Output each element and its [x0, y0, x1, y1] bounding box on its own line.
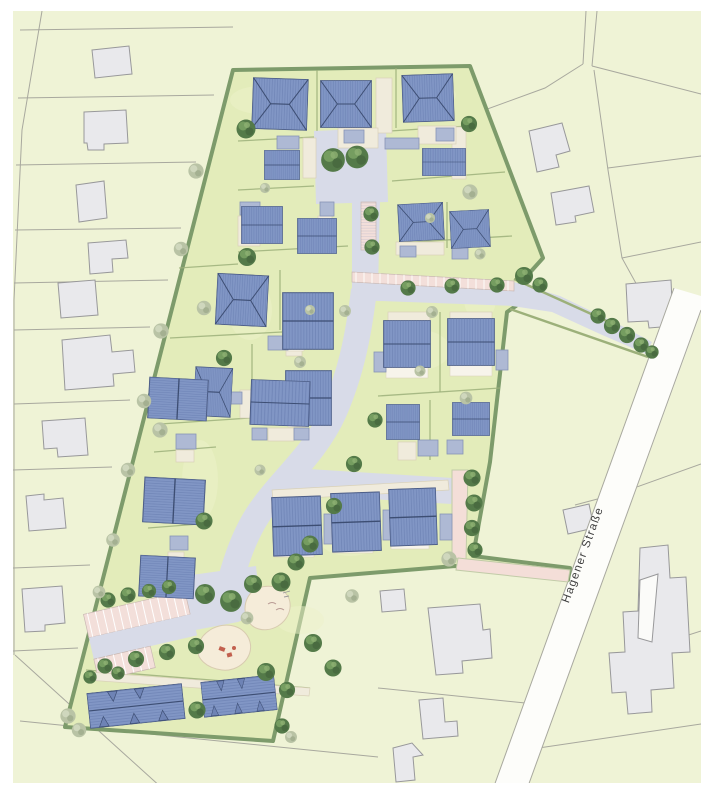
tree — [111, 666, 124, 679]
tree — [321, 148, 345, 172]
house — [389, 488, 438, 546]
bush — [305, 305, 315, 315]
tree — [346, 456, 362, 472]
tree — [364, 239, 379, 254]
tree — [195, 584, 215, 604]
house — [148, 377, 209, 421]
tree — [515, 267, 533, 285]
tree — [363, 206, 378, 221]
bush — [153, 323, 168, 338]
tree — [83, 670, 96, 683]
garage — [320, 202, 334, 216]
tree — [237, 120, 256, 139]
bush — [414, 365, 425, 376]
bush — [426, 306, 438, 318]
house-hip-roof — [252, 78, 309, 131]
tree — [238, 248, 256, 266]
bush — [152, 422, 167, 437]
tree — [220, 590, 242, 612]
tree — [304, 634, 322, 652]
site-plan-map: Hagener Straße — [0, 0, 701, 800]
tree — [590, 308, 605, 323]
house — [242, 206, 283, 243]
bush — [254, 464, 265, 475]
tree — [461, 116, 477, 132]
bush — [260, 183, 270, 193]
house-hip-roof — [402, 74, 455, 123]
bush — [241, 612, 254, 625]
bush — [441, 551, 456, 566]
bush — [460, 392, 473, 405]
tree — [324, 659, 341, 676]
garage — [447, 440, 463, 454]
tree — [128, 651, 144, 667]
existing-building — [76, 181, 107, 222]
tree — [142, 584, 156, 598]
bush — [93, 586, 106, 599]
tree — [465, 494, 482, 511]
row-houses — [201, 675, 278, 717]
house-hip-roof — [398, 202, 445, 241]
existing-building — [58, 280, 98, 318]
house — [250, 380, 310, 427]
house-hip-roof — [215, 273, 269, 326]
tree — [489, 277, 504, 292]
bush — [188, 163, 203, 178]
garage — [344, 130, 364, 143]
tree — [604, 318, 620, 334]
tree — [279, 682, 295, 698]
garage — [294, 428, 309, 440]
garage — [400, 246, 416, 257]
house — [448, 319, 495, 366]
tree — [645, 345, 658, 358]
tree — [463, 469, 480, 486]
bush — [285, 731, 297, 743]
house — [283, 293, 334, 350]
bush — [72, 723, 86, 737]
bush — [462, 184, 477, 199]
house — [386, 404, 419, 439]
bush — [60, 708, 75, 723]
bush — [197, 301, 211, 315]
bush — [294, 356, 306, 368]
tree — [216, 350, 232, 366]
garage — [252, 428, 267, 440]
tree — [367, 412, 382, 427]
bush — [339, 305, 351, 317]
garage — [176, 434, 196, 449]
house — [297, 218, 336, 253]
existing-building — [92, 46, 132, 78]
tree — [188, 701, 205, 718]
garage — [170, 536, 188, 550]
garage — [440, 514, 452, 540]
tree — [619, 327, 635, 343]
tree — [287, 553, 304, 570]
tree — [244, 575, 262, 593]
bush — [474, 248, 485, 259]
tree — [97, 658, 112, 673]
bush — [137, 394, 151, 408]
garage — [436, 128, 454, 141]
tree — [257, 663, 275, 681]
tree — [159, 644, 175, 660]
house — [384, 321, 431, 368]
tree — [272, 573, 291, 592]
garage — [418, 440, 438, 456]
bush — [174, 242, 188, 256]
bush — [425, 213, 435, 223]
house — [264, 150, 299, 179]
existing-building — [26, 494, 66, 531]
bush — [345, 589, 359, 603]
garage — [385, 138, 419, 149]
tree — [195, 512, 212, 529]
house — [143, 477, 206, 525]
tree — [120, 587, 135, 602]
house-hip-roof — [321, 81, 372, 128]
tree — [162, 580, 176, 594]
bush — [121, 463, 135, 477]
existing-building — [380, 589, 406, 612]
garage — [496, 350, 508, 370]
tree — [400, 280, 415, 295]
bush — [106, 533, 120, 547]
garage — [452, 248, 468, 259]
tree — [274, 718, 289, 733]
tree — [464, 520, 480, 536]
tree — [188, 638, 204, 654]
house — [423, 148, 466, 175]
tree — [532, 277, 547, 292]
tree — [326, 498, 342, 514]
garage — [277, 136, 299, 149]
house — [452, 402, 489, 435]
tree — [346, 146, 369, 169]
tree — [301, 535, 318, 552]
site-plan-canvas: Hagener Straße — [0, 0, 701, 800]
house-hip-roof — [449, 209, 490, 248]
tree — [467, 542, 482, 557]
tree — [444, 278, 459, 293]
